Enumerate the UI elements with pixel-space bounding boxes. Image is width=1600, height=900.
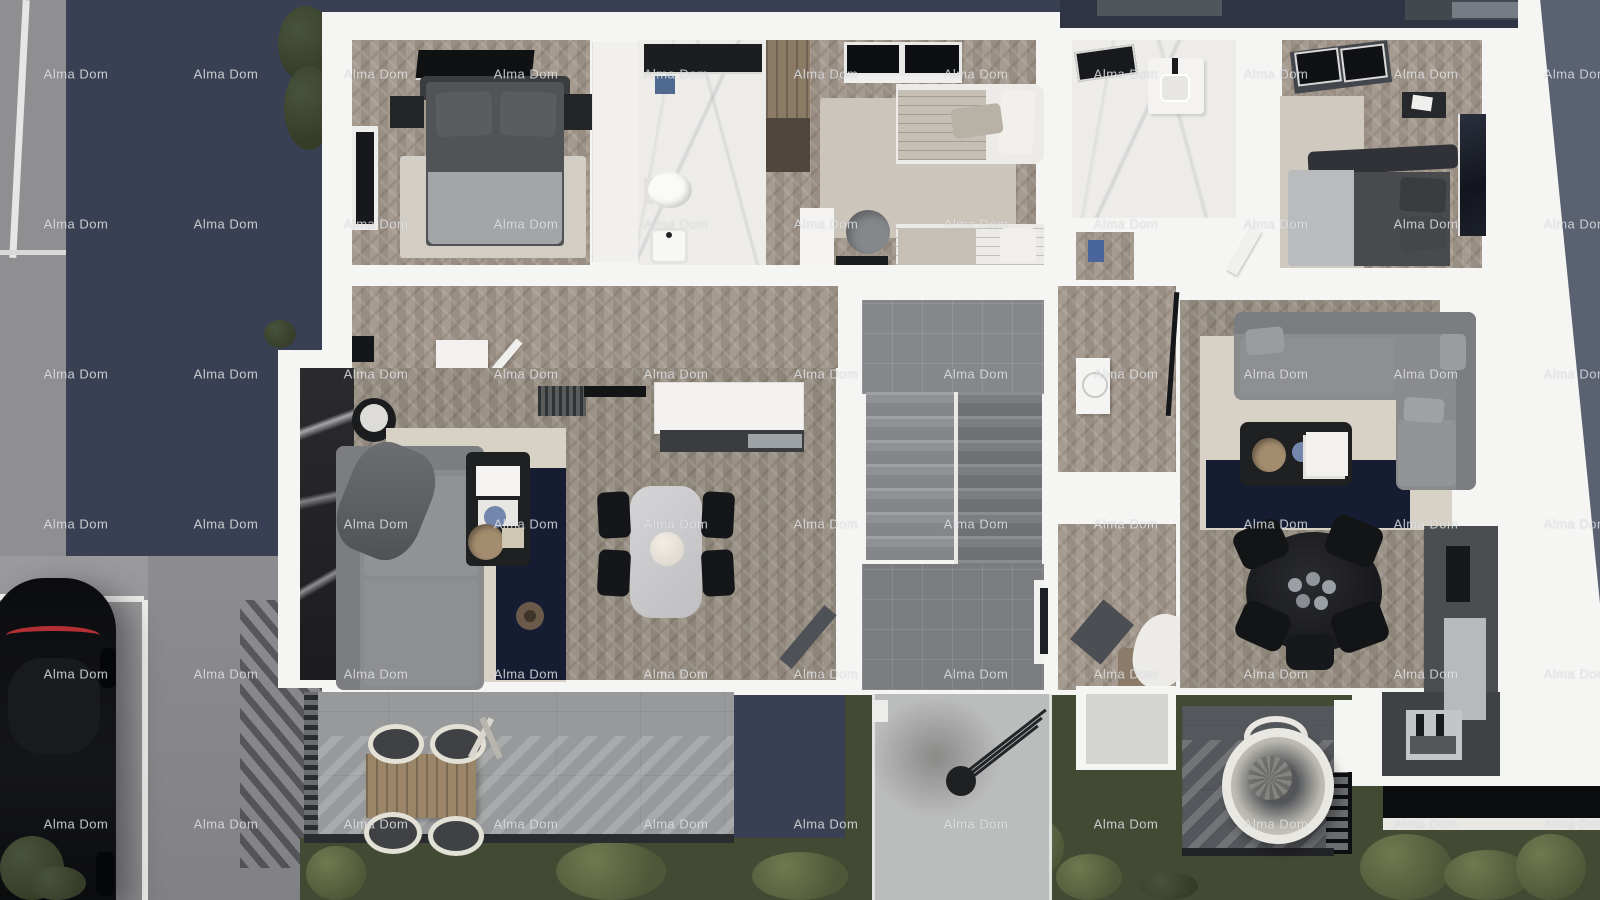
watermark-text: Alma Dom: [944, 67, 1009, 82]
floorplan-render: Alma DomAlma DomAlma DomAlma DomAlma Dom…: [0, 0, 1600, 900]
watermark-text: Alma Dom: [344, 367, 409, 382]
watermark-text: Alma Dom: [1544, 817, 1600, 832]
watermark-text: Alma Dom: [944, 367, 1009, 382]
watermark-text: Alma Dom: [1544, 517, 1600, 532]
watermark-text: Alma Dom: [1244, 67, 1309, 82]
watermark-text: Alma Dom: [794, 367, 859, 382]
watermark-text: Alma Dom: [344, 67, 409, 82]
watermark-text: Alma Dom: [1094, 667, 1159, 682]
watermark-text: Alma Dom: [1394, 67, 1459, 82]
watermark-text: Alma Dom: [644, 667, 709, 682]
watermark-text: Alma Dom: [344, 517, 409, 532]
watermark-text: Alma Dom: [794, 217, 859, 232]
watermark-text: Alma Dom: [194, 517, 259, 532]
watermark-text: Alma Dom: [1094, 67, 1159, 82]
watermark-text: Alma Dom: [494, 367, 559, 382]
watermark-text: Alma Dom: [1394, 817, 1459, 832]
watermark-text: Alma Dom: [44, 667, 109, 682]
watermark-text: Alma Dom: [44, 217, 109, 232]
watermark-text: Alma Dom: [644, 217, 709, 232]
watermark-text: Alma Dom: [1094, 517, 1159, 532]
watermark-text: Alma Dom: [944, 667, 1009, 682]
watermark-text: Alma Dom: [494, 67, 559, 82]
watermark-text: Alma Dom: [1094, 367, 1159, 382]
watermark-text: Alma Dom: [44, 817, 109, 832]
watermark-text: Alma Dom: [944, 217, 1009, 232]
watermark-text: Alma Dom: [44, 517, 109, 532]
watermark-text: Alma Dom: [794, 817, 859, 832]
watermark-text: Alma Dom: [194, 367, 259, 382]
watermark-text: Alma Dom: [1544, 217, 1600, 232]
watermark-text: Alma Dom: [44, 367, 109, 382]
watermark-text: Alma Dom: [944, 517, 1009, 532]
watermark-text: Alma Dom: [1394, 217, 1459, 232]
watermark-text: Alma Dom: [1244, 667, 1309, 682]
watermark-text: Alma Dom: [344, 217, 409, 232]
watermark-text: Alma Dom: [494, 217, 559, 232]
watermark-layer: Alma DomAlma DomAlma DomAlma DomAlma Dom…: [0, 0, 1600, 900]
watermark-text: Alma Dom: [794, 517, 859, 532]
watermark-text: Alma Dom: [1394, 367, 1459, 382]
watermark-text: Alma Dom: [944, 817, 1009, 832]
watermark-text: Alma Dom: [644, 817, 709, 832]
watermark-text: Alma Dom: [1094, 817, 1159, 832]
watermark-text: Alma Dom: [194, 67, 259, 82]
watermark-text: Alma Dom: [194, 667, 259, 682]
watermark-text: Alma Dom: [1244, 367, 1309, 382]
watermark-text: Alma Dom: [644, 367, 709, 382]
watermark-text: Alma Dom: [794, 67, 859, 82]
watermark-text: Alma Dom: [194, 217, 259, 232]
watermark-text: Alma Dom: [494, 817, 559, 832]
watermark-text: Alma Dom: [1544, 667, 1600, 682]
watermark-text: Alma Dom: [1244, 817, 1309, 832]
watermark-text: Alma Dom: [1544, 67, 1600, 82]
watermark-text: Alma Dom: [1244, 217, 1309, 232]
watermark-text: Alma Dom: [344, 817, 409, 832]
watermark-text: Alma Dom: [194, 817, 259, 832]
watermark-text: Alma Dom: [1094, 217, 1159, 232]
watermark-text: Alma Dom: [1394, 517, 1459, 532]
watermark-text: Alma Dom: [344, 667, 409, 682]
watermark-text: Alma Dom: [644, 517, 709, 532]
watermark-text: Alma Dom: [1394, 667, 1459, 682]
watermark-text: Alma Dom: [44, 67, 109, 82]
watermark-text: Alma Dom: [794, 667, 859, 682]
watermark-text: Alma Dom: [1244, 517, 1309, 532]
watermark-text: Alma Dom: [1544, 367, 1600, 382]
watermark-text: Alma Dom: [494, 517, 559, 532]
watermark-text: Alma Dom: [494, 667, 559, 682]
watermark-text: Alma Dom: [644, 67, 709, 82]
